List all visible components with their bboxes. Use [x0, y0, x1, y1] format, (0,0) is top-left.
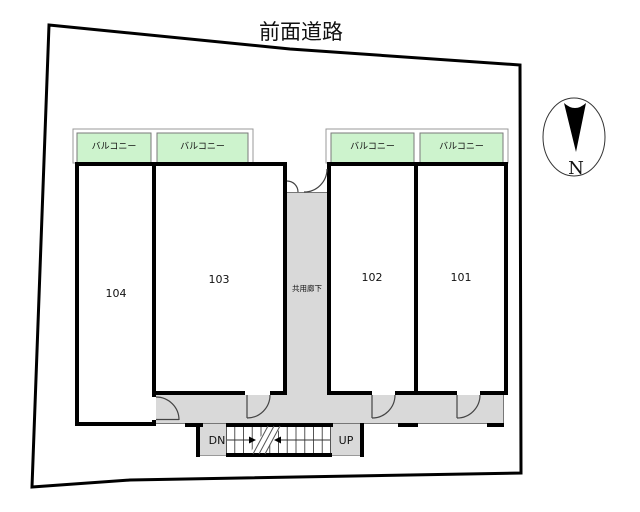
balcony-label-1: バルコニー: [92, 141, 137, 152]
wall-room102-101-divider: [414, 162, 418, 395]
balcony-label-4: バルコニー: [439, 141, 484, 152]
wall-corridor-left: [283, 166, 287, 395]
floor-plan-canvas: バルコニー バルコニー バルコニー バルコニー: [0, 0, 640, 512]
balcony-group-right: バルコニー バルコニー: [326, 129, 508, 163]
wall-room102-bottom-a: [331, 391, 372, 395]
wall-room101-bottom-a: [418, 391, 457, 395]
room-102-label: 102: [362, 271, 383, 284]
corridor-vertical: [287, 193, 327, 395]
wall-stairs-bottom: [226, 453, 332, 457]
wall-outer-left: [75, 162, 79, 426]
wall-corridor-stub-1: [185, 423, 203, 427]
wall-corridor-stub-2: [398, 423, 418, 427]
wall-room103-bottom-b: [270, 391, 287, 395]
wall-corridor-stub-3: [487, 423, 504, 427]
corridor-label: 共用廊下: [292, 283, 322, 293]
room-104-label: 104: [106, 287, 127, 300]
wall-stairwell-right: [360, 423, 364, 457]
up-label: UP: [339, 434, 354, 447]
wall-outer-right: [504, 162, 508, 395]
balcony-group-left: バルコニー バルコニー: [73, 129, 253, 163]
wall-room101-bottom-b: [480, 391, 508, 395]
room-103-label: 103: [209, 273, 230, 286]
wall-room103-bottom-a: [152, 391, 245, 395]
balcony-label-3: バルコニー: [350, 141, 395, 152]
balcony-label-2: バルコニー: [180, 141, 225, 152]
floor-plan: バルコニー バルコニー バルコニー バルコニー: [0, 0, 640, 512]
wall-stairwell-left: [196, 423, 200, 457]
wall-room104-right: [152, 162, 156, 397]
wall-room104-bottom: [75, 422, 156, 426]
wall-corridor-right: [327, 166, 331, 395]
corridor-horizontal: [156, 395, 504, 423]
road-label: 前面道路: [259, 20, 343, 44]
compass-north-label: N: [568, 158, 584, 179]
wall-top-left: [75, 162, 287, 166]
room-101-label: 101: [451, 271, 472, 284]
dn-label: DN: [209, 434, 226, 447]
